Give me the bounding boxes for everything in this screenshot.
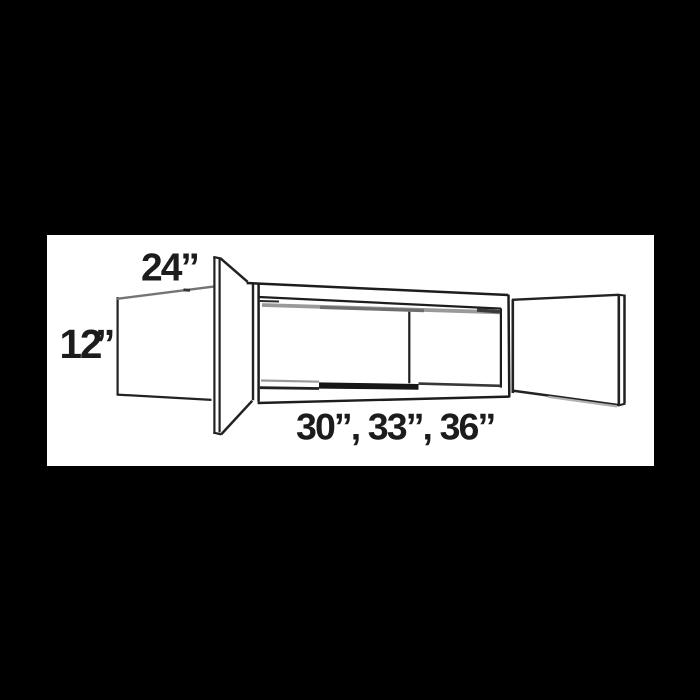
svg-text:12”: 12” (60, 321, 114, 367)
svg-text:24”: 24” (141, 247, 198, 290)
svg-text:30”, 33”, 36”: 30”, 33”, 36” (296, 406, 494, 448)
